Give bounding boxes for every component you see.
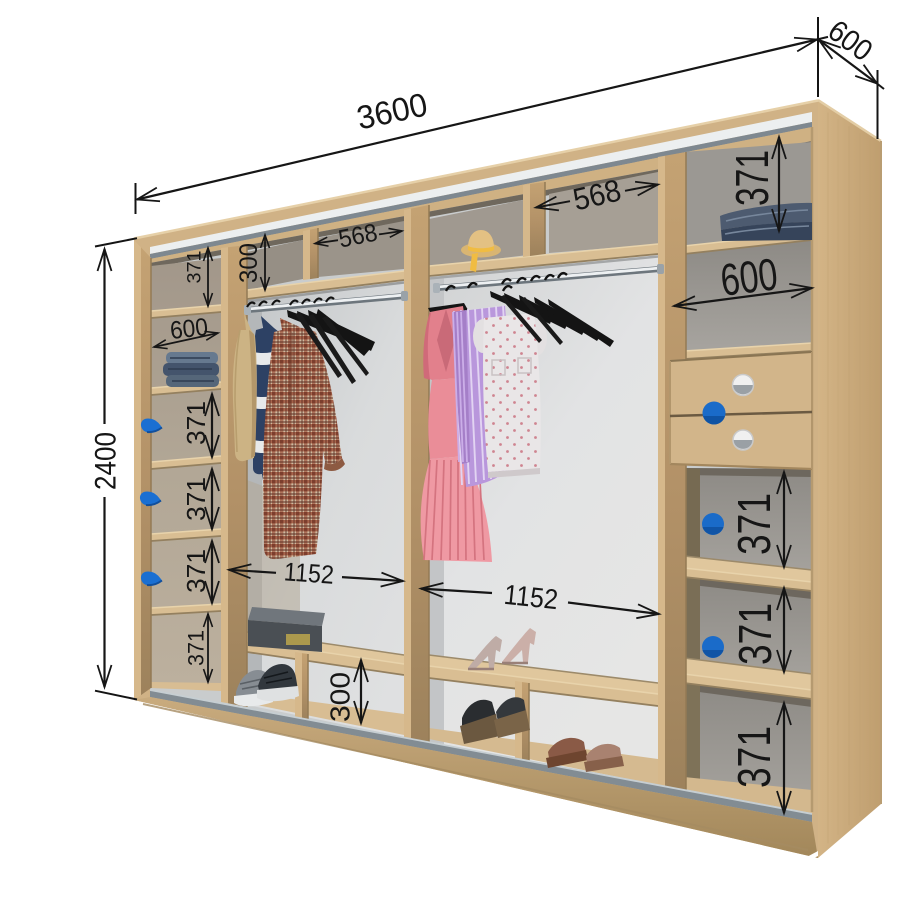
- svg-text:371: 371: [726, 150, 778, 206]
- svg-text:371: 371: [181, 477, 211, 521]
- svg-text:371: 371: [181, 549, 211, 593]
- svg-text:371: 371: [185, 251, 206, 284]
- svg-text:1152: 1152: [503, 579, 560, 615]
- svg-text:371: 371: [728, 726, 780, 788]
- svg-text:371: 371: [728, 493, 780, 555]
- svg-text:300: 300: [235, 243, 263, 283]
- svg-text:1152: 1152: [283, 556, 335, 589]
- svg-text:371: 371: [184, 630, 209, 666]
- svg-text:300: 300: [325, 672, 356, 722]
- svg-text:371: 371: [181, 401, 211, 445]
- svg-text:2400: 2400: [90, 432, 123, 490]
- svg-text:371: 371: [729, 603, 781, 665]
